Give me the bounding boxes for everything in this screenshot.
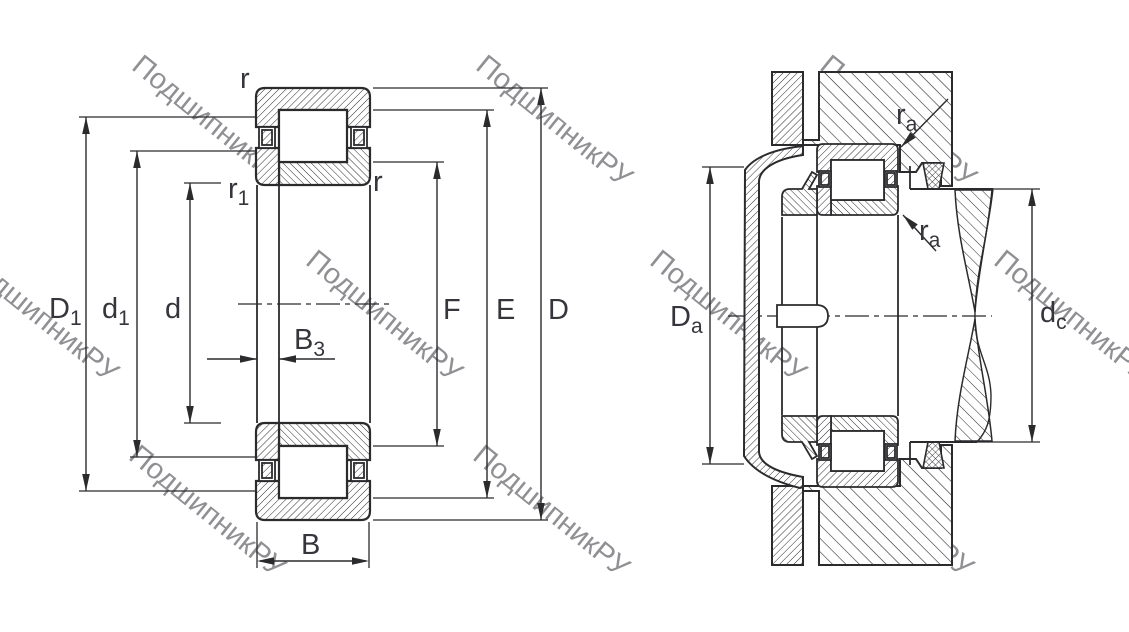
roller-top bbox=[279, 110, 347, 162]
roller bbox=[831, 160, 884, 200]
roller-bottom bbox=[279, 446, 347, 498]
left-view-bearing-section: r r r1 D1 d1 d B3 B F E D bbox=[49, 63, 569, 568]
label-E: E bbox=[496, 294, 515, 326]
label-d1: d1 bbox=[102, 293, 130, 330]
label-B: B bbox=[301, 529, 320, 561]
label-F: F bbox=[443, 294, 461, 326]
label-B3: B3 bbox=[294, 324, 325, 361]
loose-rib-top bbox=[256, 148, 279, 185]
technical-drawing-page: ПодшипникРУ ПодшипникРУ ПодшипникРУ Подш… bbox=[0, 0, 1129, 632]
label-D1: D1 bbox=[49, 293, 82, 330]
roller bbox=[831, 431, 884, 471]
watermark-text: ПодшипникРУ bbox=[470, 49, 639, 194]
label-ra-lower: ra bbox=[919, 215, 941, 252]
abutment-rib-bottom bbox=[782, 416, 817, 459]
loose-rib-bottom bbox=[256, 423, 279, 460]
inner-rib bbox=[817, 416, 831, 445]
abutment-rib-top bbox=[782, 172, 817, 215]
label-r-outer: r bbox=[240, 63, 250, 95]
shaft-fillet-section-bottom bbox=[955, 319, 992, 441]
inner-rib bbox=[817, 186, 831, 215]
label-r1: r1 bbox=[228, 173, 249, 210]
shaft-center-bolt bbox=[777, 305, 828, 327]
label-d: d bbox=[165, 293, 181, 325]
watermark-text: ПодшипникРУ bbox=[467, 439, 636, 584]
mounted-bearing-top bbox=[817, 144, 898, 215]
shaft-fillet-section-top bbox=[955, 190, 992, 312]
label-r-inner: r bbox=[373, 166, 383, 198]
label-D: D bbox=[548, 294, 569, 326]
bearing-drawing-svg: ПодшипникРУ ПодшипникРУ ПодшипникРУ Подш… bbox=[0, 0, 1129, 632]
mounted-bearing-bottom bbox=[817, 416, 898, 487]
